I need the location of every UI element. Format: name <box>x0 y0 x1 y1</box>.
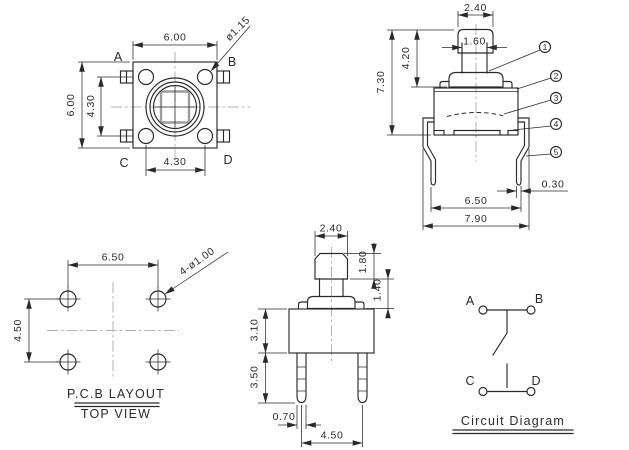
technical-drawing-page: 6.00 ø1.15 A B C D 6.00 4.30 4.30 <box>0 0 629 450</box>
dim-body-height: 3.10 <box>249 319 261 342</box>
dim-left-height: 6.00 <box>65 94 77 117</box>
pin-label-b: B <box>228 55 236 69</box>
pcb-topview-subtitle: TOP VIEW <box>81 407 151 421</box>
pin-label-d: D <box>223 153 232 167</box>
pcb-layout-view: 6.50 4-ø1.00 4.50 P.C.B LAYOUT TOP VIEW <box>12 245 228 421</box>
top-view: 6.00 ø1.15 A B C D 6.00 4.30 4.30 <box>65 14 253 176</box>
circuit-diagram: A B C D Circuit Diagram <box>453 292 573 434</box>
callout-3: 3 <box>554 93 559 103</box>
dim-lead-thickness: 0.30 <box>542 179 565 191</box>
dim-hole-pitch-horizontal: 6.50 <box>102 252 125 264</box>
terminal-c-node <box>479 388 487 396</box>
dim-stem-width: 1.60 <box>463 36 486 48</box>
terminal-c-label: C <box>465 374 474 388</box>
tact-switch-drawing: 6.00 ø1.15 A B C D 6.00 4.30 4.30 <box>0 0 629 450</box>
dim-cap-width: 2.40 <box>464 2 487 14</box>
pin-label-c: C <box>119 156 128 170</box>
dim-pin-pitch-vertical: 4.30 <box>85 95 97 118</box>
dim-lead-span: 6.50 <box>465 195 488 207</box>
dim-lead-width: 0.70 <box>273 411 296 423</box>
dim-button-diameter: ø1.15 <box>223 14 253 44</box>
dim-hole-diameter: 4-ø1.00 <box>177 245 217 278</box>
callout-5: 5 <box>554 147 559 157</box>
switch-arm <box>493 333 507 355</box>
dim-overall-width: 7.90 <box>465 213 488 225</box>
dim-front-cap-width: 2.40 <box>320 223 343 235</box>
terminal-b-node <box>527 306 535 314</box>
circuit-diagram-title: Circuit Diagram <box>461 414 565 428</box>
terminal-d-node <box>527 388 535 396</box>
terminal-a-node <box>479 306 487 314</box>
terminal-b-label: B <box>535 292 543 306</box>
callout-2: 2 <box>554 71 559 81</box>
callouts: 1 2 3 4 5 <box>489 42 562 158</box>
dim-lead-length: 3.50 <box>249 366 261 389</box>
dim-pin-pitch-horizontal: 4.30 <box>164 156 187 168</box>
button-plunger <box>146 78 204 136</box>
dim-collar-height: 1.40 <box>372 279 384 302</box>
dim-cap-height: 1.80 <box>357 251 369 274</box>
metal-dome <box>447 113 506 117</box>
dim-lead-pitch: 4.50 <box>321 430 344 442</box>
dim-total-height: 7.30 <box>375 71 387 94</box>
dim-stem-height: 4.20 <box>400 47 412 70</box>
dim-hole-pitch-vertical: 4.50 <box>12 319 24 342</box>
terminal-d-label: D <box>531 374 540 388</box>
pcb-layout-title: P.C.B LAYOUT <box>67 387 165 401</box>
terminal-a-label: A <box>466 294 475 308</box>
front-right-leg <box>358 353 367 403</box>
front-left-leg <box>297 353 306 403</box>
side-view: 2.40 1.60 4.20 7.30 0.30 6.50 7.90 <box>375 2 568 230</box>
front-view: 2.40 1.80 1.40 3.10 3.50 0.70 4.50 <box>249 223 395 448</box>
callout-1: 1 <box>543 42 548 52</box>
callout-4: 4 <box>554 119 559 129</box>
dim-top-width: 6.00 <box>164 32 187 44</box>
